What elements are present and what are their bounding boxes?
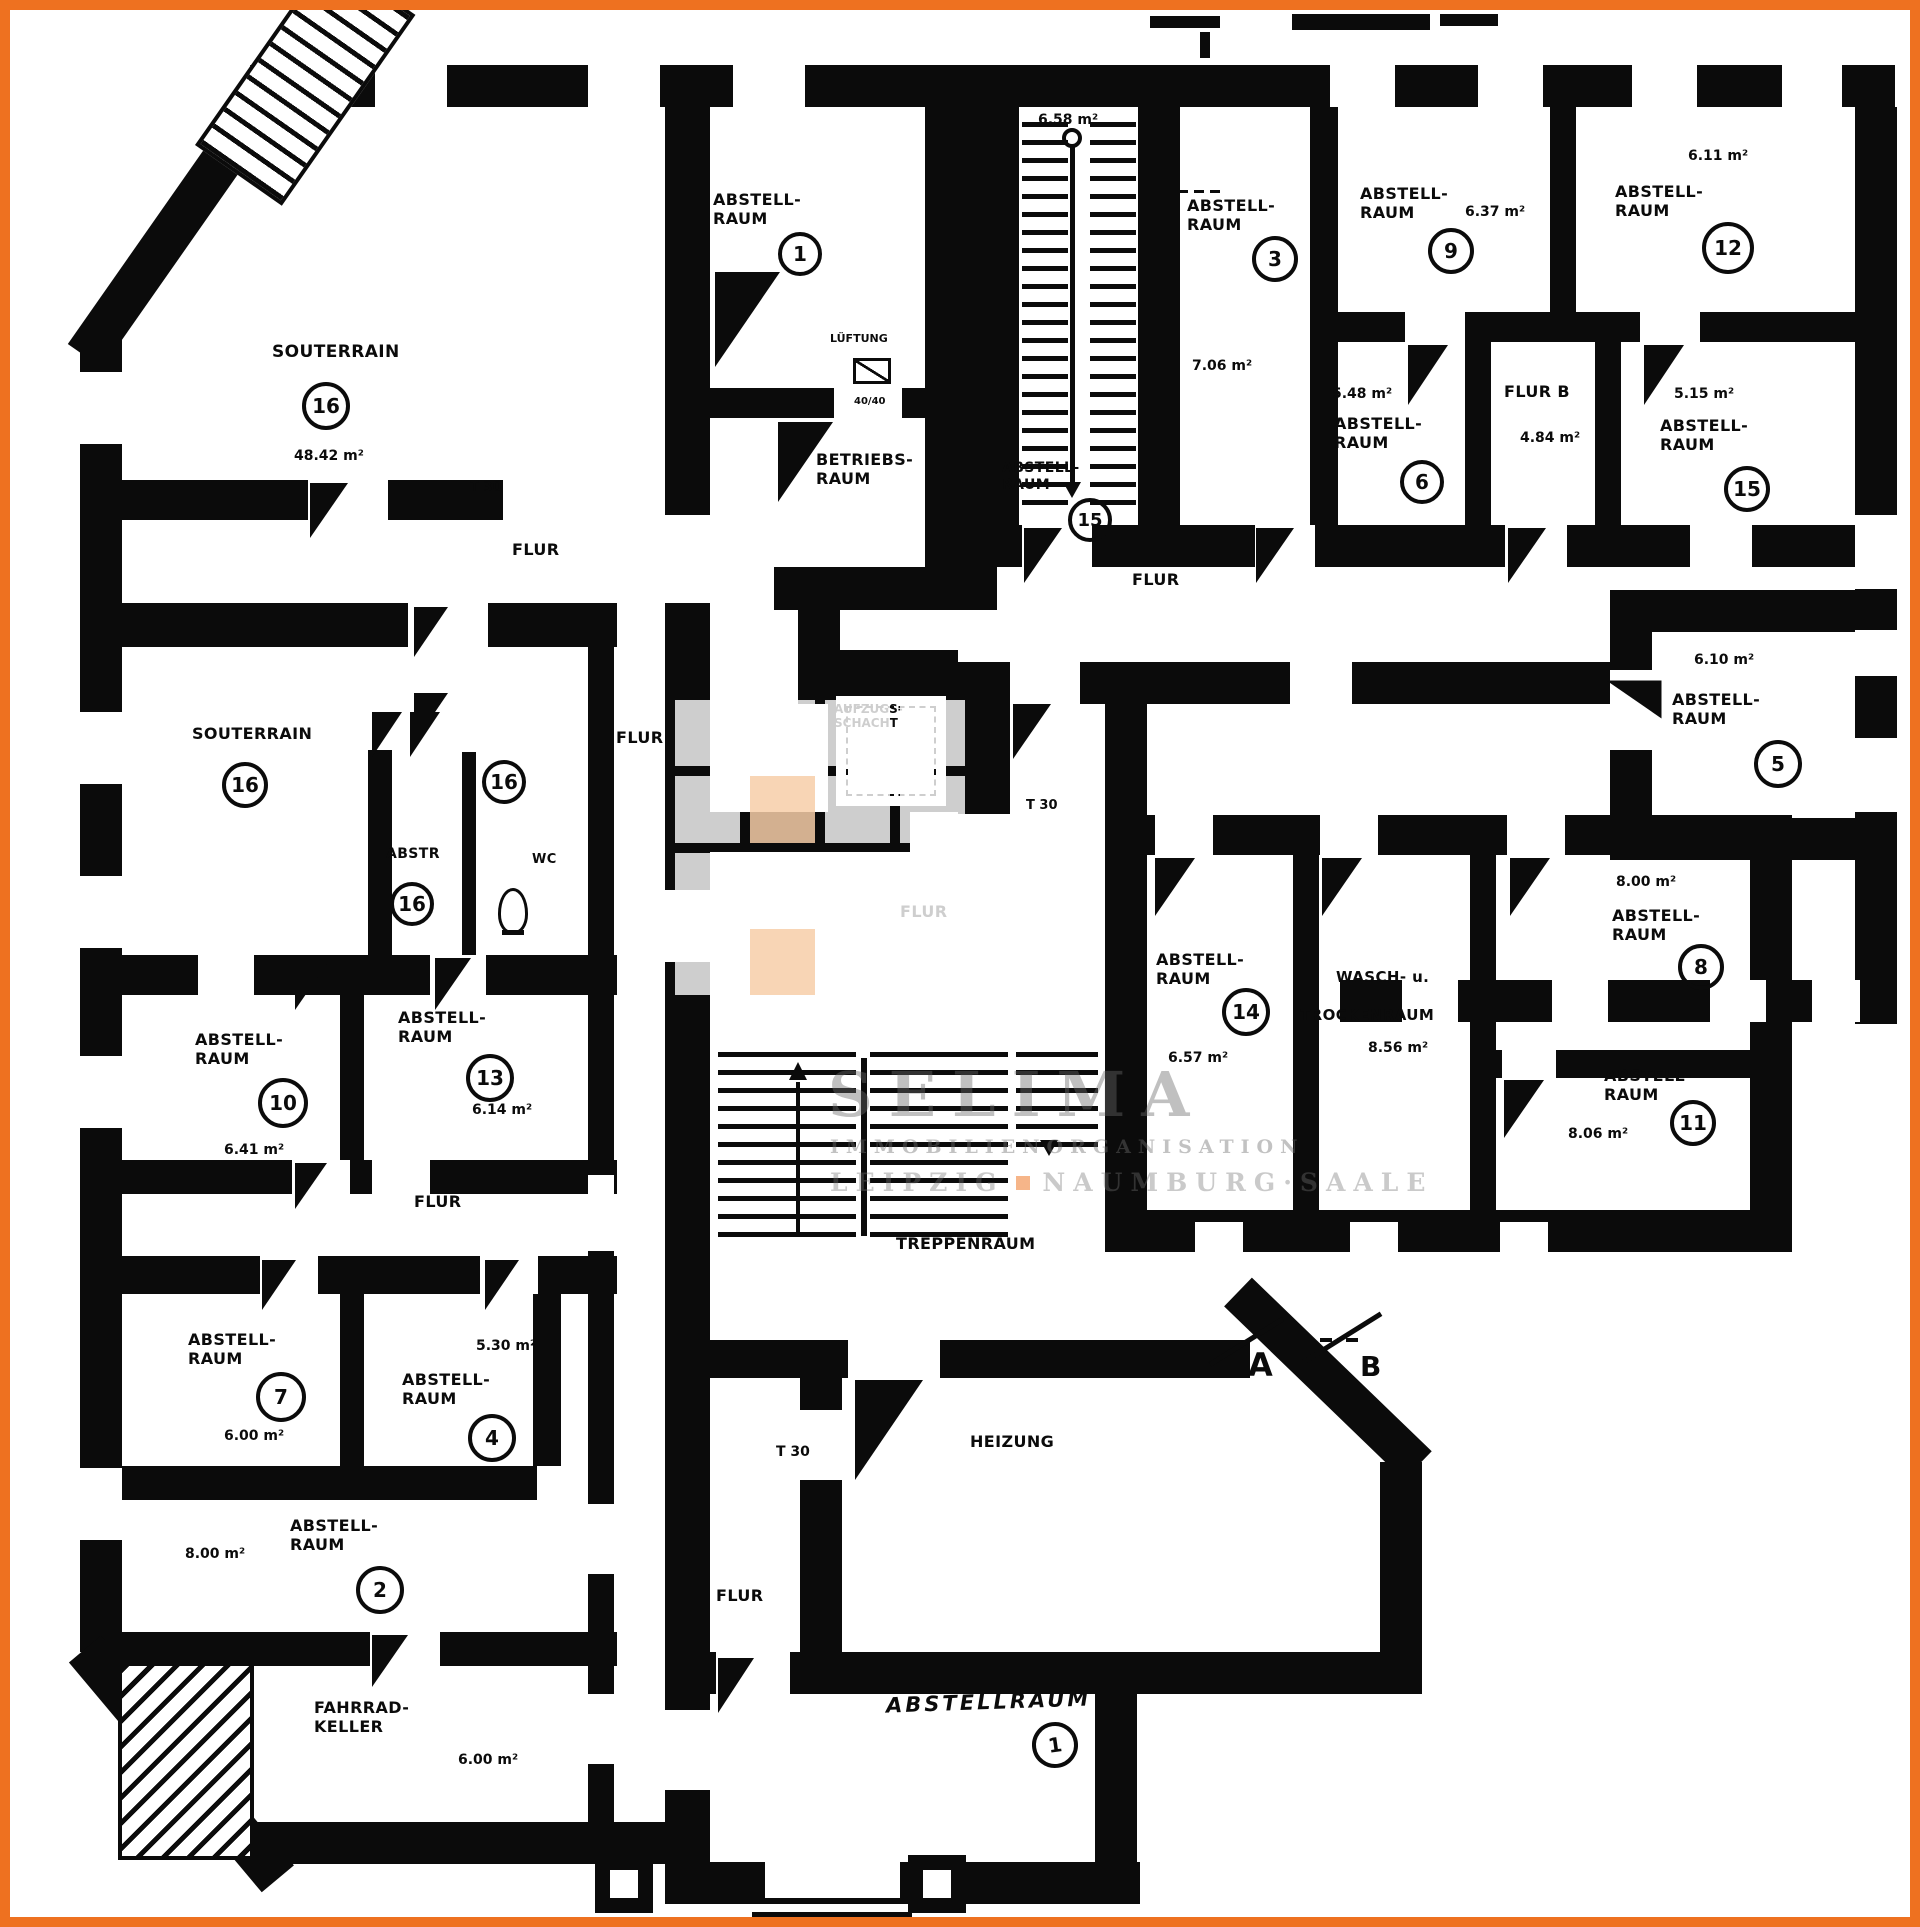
watermark-cell: [825, 929, 890, 995]
room-number-badge: 9: [1428, 228, 1474, 274]
room-label-abstellraum-13: ABSTELL- RAUM: [398, 1008, 486, 1046]
wall: [105, 603, 617, 647]
leader-line: [1146, 190, 1226, 193]
window-opening: [80, 1468, 122, 1540]
door-swing-icon: [1510, 858, 1550, 916]
watermark-name: SELIMA: [828, 1058, 1205, 1131]
room-name: FLUR: [616, 728, 663, 747]
room-label-abstellraum-2: ABSTELL- RAUM: [290, 1516, 378, 1554]
window-opening: [80, 1056, 122, 1128]
door-opening: [1320, 815, 1378, 855]
window-opening: [1350, 1222, 1398, 1262]
corridor-label-flur: FLUR: [414, 1192, 461, 1211]
room-name: FLUR B: [1504, 382, 1570, 401]
wall: [1138, 107, 1180, 567]
drawing-fragment: [1200, 32, 1210, 58]
room-name: SOUTERRAIN: [192, 724, 312, 743]
room-label-waschraum: WASCH- u.: [1336, 968, 1429, 986]
room-name-line1: ABSTELL-: [402, 1370, 490, 1389]
room-area: 8.06 m²: [1568, 1126, 1628, 1142]
room-name-line2: RAUM: [1615, 201, 1703, 220]
room-name-line1: ABSTELL-: [1615, 182, 1703, 201]
room-area: 6.41 m²: [224, 1142, 284, 1158]
room-name-line1: ABSTELL-: [290, 1516, 378, 1535]
room-name-line1: ABSTELL-: [1156, 950, 1244, 969]
wall: [798, 650, 958, 688]
door-opening: [1290, 662, 1352, 704]
window-opening: [1855, 515, 1897, 589]
window-opening: [1782, 65, 1842, 107]
wall: [1470, 855, 1496, 1212]
window-opening: [1632, 65, 1697, 107]
stairs-icon: [1022, 122, 1068, 517]
room-name-line2: RAUM: [402, 1389, 490, 1408]
wall: [105, 1256, 617, 1294]
room-name-line1: FAHRRAD-: [314, 1698, 409, 1717]
room-name: FLUR: [512, 540, 559, 559]
door-opening: [665, 1710, 710, 1790]
room-label-abstellraum-1: ABSTELL- RAUM: [713, 190, 801, 228]
room-area: 6.14 m²: [472, 1102, 532, 1118]
window-opening: [588, 65, 660, 107]
door-swing-icon: [855, 1380, 923, 1480]
section-cut-dashline: [1294, 1338, 1360, 1342]
room-name-line1: WASCH- u.: [1336, 968, 1429, 986]
door-opening: [710, 567, 774, 610]
toilet-icon: [502, 930, 524, 935]
lueftung-label: LÜFTUNG: [830, 332, 888, 345]
watermark-cell: [675, 700, 740, 766]
room-name: FLUR: [1132, 570, 1179, 589]
room-name-line2: KELLER: [314, 1717, 409, 1736]
section-marker-a: A: [1248, 1346, 1273, 1384]
watermark-cell: [900, 776, 965, 842]
room-area: 5.30 m²: [476, 1338, 536, 1354]
entrance-step: [752, 1898, 912, 1904]
room-label-abstellraum-8: ABSTELL- RAUM: [1612, 906, 1700, 944]
room-area: 6.37 m²: [1465, 204, 1525, 220]
door-swing-icon: [1607, 681, 1662, 719]
window-opening: [1812, 980, 1860, 1022]
corridor-label-flur: FLUR: [512, 540, 559, 559]
door-swing-icon: [435, 958, 471, 1010]
window-opening: [80, 876, 122, 948]
room-name-line1: ABSTELL-: [1334, 414, 1422, 433]
fire-door-label: T 30: [470, 480, 501, 495]
room-label-abstellraum-6: ABSTELL- RAUM: [1334, 414, 1422, 452]
room-name-line1: ABSTELL-: [1612, 906, 1700, 925]
door-opening: [588, 1504, 614, 1574]
watermark-cell: [750, 700, 815, 766]
room-name-line1: ABSTELL-: [1604, 1066, 1692, 1085]
watermark-cell: [900, 700, 965, 766]
room-label-fahrradkeller: FAHRRAD- KELLER: [314, 1698, 409, 1736]
room-area: 6.00 m²: [224, 1428, 284, 1444]
floor-plan: SOUTERRAIN 16 48.42 m² SOUTERRAIN 16 ABS…: [0, 0, 1920, 1927]
door-opening: [1405, 312, 1465, 342]
room-number-badge: 8: [1678, 944, 1724, 990]
watermark-cities: LEIPZIG NAUMBURG·SAALE: [830, 1168, 1433, 1197]
drawing-fragment: [1440, 14, 1498, 26]
window-opening: [1330, 65, 1395, 107]
wall: [614, 1822, 674, 1864]
ventilation-duct-icon: [853, 358, 891, 384]
room-name-line2: RAUM: [1660, 435, 1748, 454]
room-name-line2: RAUM: [195, 1049, 283, 1068]
door-opening: [198, 955, 254, 995]
wall: [1595, 342, 1621, 525]
entrance-step: [752, 1912, 912, 1918]
room-label-abstellraum-15s: ABSTELL- RAUM: [1002, 460, 1080, 494]
room-name-line2: RAUM: [188, 1349, 276, 1368]
stair-arrow-start-icon: [1062, 128, 1082, 148]
wall: [462, 752, 476, 955]
room-number-badge: 13: [466, 1054, 514, 1102]
room-name: TREPPENRAUM: [896, 1234, 1035, 1253]
room-label-abstr: ABSTR: [386, 846, 440, 863]
room-area: 6.58 m²: [1038, 112, 1098, 128]
door-swing-icon: [1256, 528, 1294, 583]
door-opening: [372, 1160, 430, 1194]
wall: [105, 480, 503, 520]
door-opening: [1507, 815, 1565, 855]
door-post-inner: [923, 1870, 951, 1898]
door-swing-icon: [718, 1658, 754, 1713]
room-label-abstellraum-9: ABSTELL- RAUM: [1360, 184, 1448, 222]
window-opening: [1855, 630, 1897, 676]
wall: [340, 1294, 364, 1466]
window-opening: [1195, 1222, 1243, 1262]
watermark-cell: [675, 776, 740, 842]
room-label-souterrain: SOUTERRAIN: [272, 342, 400, 362]
door-swing-icon: [295, 958, 331, 1010]
wall: [1105, 662, 1147, 1252]
room-label-abstellraum-4: ABSTELL- RAUM: [402, 1370, 490, 1408]
room-number-badge: 7: [256, 1372, 306, 1422]
window-opening: [80, 712, 122, 784]
corridor-label-flur: FLUR: [616, 728, 663, 747]
door-swing-icon: [715, 272, 780, 367]
room-name-line2: RAUM: [1156, 969, 1244, 988]
room-area: 6.10 m²: [1694, 652, 1754, 668]
room-label-abstellraum-12: ABSTELL- RAUM: [1615, 182, 1703, 220]
door-opening: [1640, 312, 1700, 342]
room-number-badge: 5: [1754, 740, 1802, 788]
stair-arrow-head-icon: [789, 1062, 807, 1080]
wall: [1750, 815, 1792, 1252]
wall: [925, 107, 997, 567]
room-number-badge: 12: [1702, 222, 1754, 274]
room-label-souterrain-2: SOUTERRAIN: [192, 724, 312, 743]
wall: [1095, 1694, 1137, 1864]
window-opening: [375, 65, 447, 107]
exterior-stairs-icon: [118, 1662, 254, 1860]
watermark-separator-icon: [1016, 1176, 1030, 1190]
watermark-cell: [750, 853, 815, 919]
watermark-cell: [825, 853, 890, 919]
room-label-abstellraum-3: ABSTELL- RAUM: [1187, 196, 1275, 234]
room-area: 8.00 m²: [1616, 874, 1676, 890]
wall: [340, 995, 364, 1163]
door-swing-icon: [485, 1260, 519, 1310]
room-name-line2: RAUM: [816, 469, 913, 488]
door-swing-icon: [1322, 858, 1362, 916]
room-name-line1: ABSTELL-: [398, 1008, 486, 1027]
wall: [1465, 342, 1491, 525]
door-swing-icon: [1013, 704, 1051, 759]
room-name: ABSTR: [386, 846, 440, 863]
door-opening: [1010, 662, 1080, 704]
fire-door-label: T 30: [1026, 798, 1057, 813]
room-label-treppenraum: TREPPENRAUM: [896, 1234, 1035, 1253]
room-label-abstellraum-15: ABSTELL- RAUM: [1660, 416, 1748, 454]
door-opening: [1155, 815, 1213, 855]
room-name-line2: RAUM: [290, 1535, 378, 1554]
stairs-icon: [1090, 122, 1136, 517]
room-number-badge: 1: [778, 232, 822, 276]
window-opening: [1500, 1222, 1548, 1262]
door-opening: [1502, 1050, 1556, 1078]
watermark-cell: [900, 853, 965, 919]
drawing-fragment: [1292, 14, 1430, 30]
corridor-label-flur: FLUR: [1132, 570, 1179, 589]
room-number-badge: 16: [222, 762, 268, 808]
room-name-line1: ABSTELL-: [1187, 196, 1275, 215]
section-marker-b: B: [1360, 1350, 1381, 1383]
fire-door-label: T 30: [776, 1444, 810, 1460]
watermark-cell: [825, 700, 890, 766]
room-number-badge: 3: [1252, 236, 1298, 282]
wall: [1550, 107, 1576, 322]
door-opening: [588, 1694, 614, 1764]
door-swing-icon: [414, 693, 448, 743]
room-area: 6.11 m²: [1688, 148, 1748, 164]
window-opening: [1552, 980, 1608, 1022]
stair-arrow-line: [796, 1082, 800, 1232]
door-post-inner: [610, 1870, 638, 1898]
door-swing-icon: [1504, 1080, 1544, 1138]
drawing-fragment: [1150, 16, 1220, 28]
door-swing-icon: [1508, 528, 1546, 583]
watermark-cell: [900, 929, 965, 995]
watermark-city: LEIPZIG: [830, 1168, 1004, 1197]
door-opening: [588, 1175, 614, 1251]
room-area: 5.48 m²: [1332, 386, 1392, 402]
room-area: 7.06 m²: [1192, 358, 1252, 374]
room-name-line2: RAUM: [1672, 709, 1760, 728]
window-opening: [733, 65, 805, 107]
door-opening: [665, 515, 710, 603]
window-opening: [1478, 65, 1543, 107]
lueftung-size-label: 40/40: [854, 396, 885, 407]
room-label-abstellraum-11: ABSTELL- RAUM: [1604, 1066, 1692, 1104]
room-label-wc: WC: [532, 852, 557, 868]
room-number-badge: 16: [302, 382, 350, 430]
room-number-badge: 4: [468, 1414, 516, 1462]
door-swing-icon: [310, 483, 348, 538]
door-swing-icon: [262, 1260, 296, 1310]
wall: [1310, 312, 1855, 342]
door-swing-icon: [295, 1163, 327, 1209]
room-label-heizung: HEIZUNG: [970, 1432, 1054, 1451]
room-name-line1: ABSTELL-: [1672, 690, 1760, 709]
wall: [105, 1160, 617, 1194]
corridor-label-flur: FLUR: [716, 1586, 763, 1605]
door-swing-icon: [1024, 528, 1062, 583]
room-name-line1: ABSTELL-: [1360, 184, 1448, 203]
room-number-badge: 15: [1724, 466, 1770, 512]
room-label-flur-b: FLUR B: [1504, 382, 1570, 401]
room-name: WC: [532, 852, 557, 868]
room-name: FLUR: [716, 1586, 763, 1605]
room-name: SOUTERRAIN: [272, 342, 400, 362]
room-number-badge: 10: [258, 1078, 308, 1128]
room-area: 8.56 m²: [1368, 1040, 1428, 1056]
window-opening: [1855, 738, 1897, 812]
room-name-line2: RAUM: [1187, 215, 1275, 234]
watermark-city: NAUMBURG·SAALE: [1042, 1168, 1433, 1197]
room-name-line1: ABSTELL-: [188, 1330, 276, 1349]
room-label-betriebsraum: BETRIEBS- RAUM: [816, 450, 913, 488]
door-opening: [848, 1340, 940, 1378]
watermark-cell: [675, 853, 740, 919]
wall: [80, 340, 122, 1652]
room-name-line2: RAUM: [713, 209, 801, 228]
room-name-line2: RAUM: [398, 1027, 486, 1046]
room-number-badge: 16: [390, 882, 434, 926]
door-swing-icon: [372, 712, 402, 757]
room-number-badge: 15: [1068, 498, 1112, 542]
room-number-badge: 2: [356, 1566, 404, 1614]
watermark-cell: [825, 776, 890, 842]
room-label-abstellraum-10: ABSTELL- RAUM: [195, 1030, 283, 1068]
room-name-line2: RAUM: [1360, 203, 1448, 222]
window-opening: [1710, 980, 1766, 1022]
wall: [533, 1294, 561, 1466]
door-swing-icon: [372, 1635, 408, 1687]
room-name-line1: BETRIEBS-: [816, 450, 913, 469]
room-number-badge: 16: [482, 760, 526, 804]
watermark-logo: [675, 700, 965, 995]
room-area: 48.42 m²: [294, 448, 364, 464]
door-opening: [1690, 525, 1752, 567]
watermark-subtitle: IMMOBILIENORGANISATION: [830, 1136, 1304, 1158]
room-area: 5.15 m²: [1674, 386, 1734, 402]
wall: [105, 1632, 617, 1666]
wall: [105, 1466, 537, 1500]
room-name-line2: RAUM: [1612, 925, 1700, 944]
room-area: 4.84 m²: [1520, 430, 1580, 446]
door-swing-icon: [1155, 858, 1195, 916]
wall: [105, 955, 617, 995]
room-number-badge: 6: [1400, 460, 1444, 504]
room-name-line2: TROCKENRAUM: [1300, 1006, 1434, 1024]
door-swing-icon: [414, 607, 448, 657]
window-opening: [80, 372, 122, 444]
watermark-cell: [750, 929, 815, 995]
wall: [710, 1340, 1250, 1378]
toilet-icon: [498, 888, 528, 934]
door-swing-icon: [1408, 345, 1448, 405]
watermark-cell: [675, 929, 740, 995]
room-number-badge: 1: [1029, 1719, 1081, 1771]
room-name: HEIZUNG: [970, 1432, 1054, 1451]
room-label-abstellraum-7: ABSTELL- RAUM: [188, 1330, 276, 1368]
room-area: 8.00 m²: [185, 1546, 245, 1562]
wall: [1293, 855, 1319, 1212]
watermark-cell: [750, 776, 815, 842]
wall: [995, 107, 1019, 567]
room-name-line1: ABSTELL-: [195, 1030, 283, 1049]
room-name-line2: RAUM: [1334, 433, 1422, 452]
stair-arrow-line: [1070, 144, 1075, 484]
room-name-line2: RAUM: [1002, 477, 1080, 494]
room-area: 6.00 m²: [458, 1752, 518, 1768]
room-name-line1: ABSTELL-: [713, 190, 801, 209]
room-name: FLUR: [414, 1192, 461, 1211]
room-label-abstellraum-14: ABSTELL- RAUM: [1156, 950, 1244, 988]
room-name-line2: RAUM: [1604, 1085, 1692, 1104]
room-name-line1: ABSTELL-: [1002, 460, 1080, 477]
room-label-trockenraum: TROCKENRAUM: [1300, 1006, 1434, 1024]
room-name-line1: ABSTELL-: [1660, 416, 1748, 435]
room-number-badge: 14: [1222, 988, 1270, 1036]
room-number-badge: 11: [1670, 1100, 1716, 1146]
room-label-abstellraum-5: ABSTELL- RAUM: [1672, 690, 1760, 728]
